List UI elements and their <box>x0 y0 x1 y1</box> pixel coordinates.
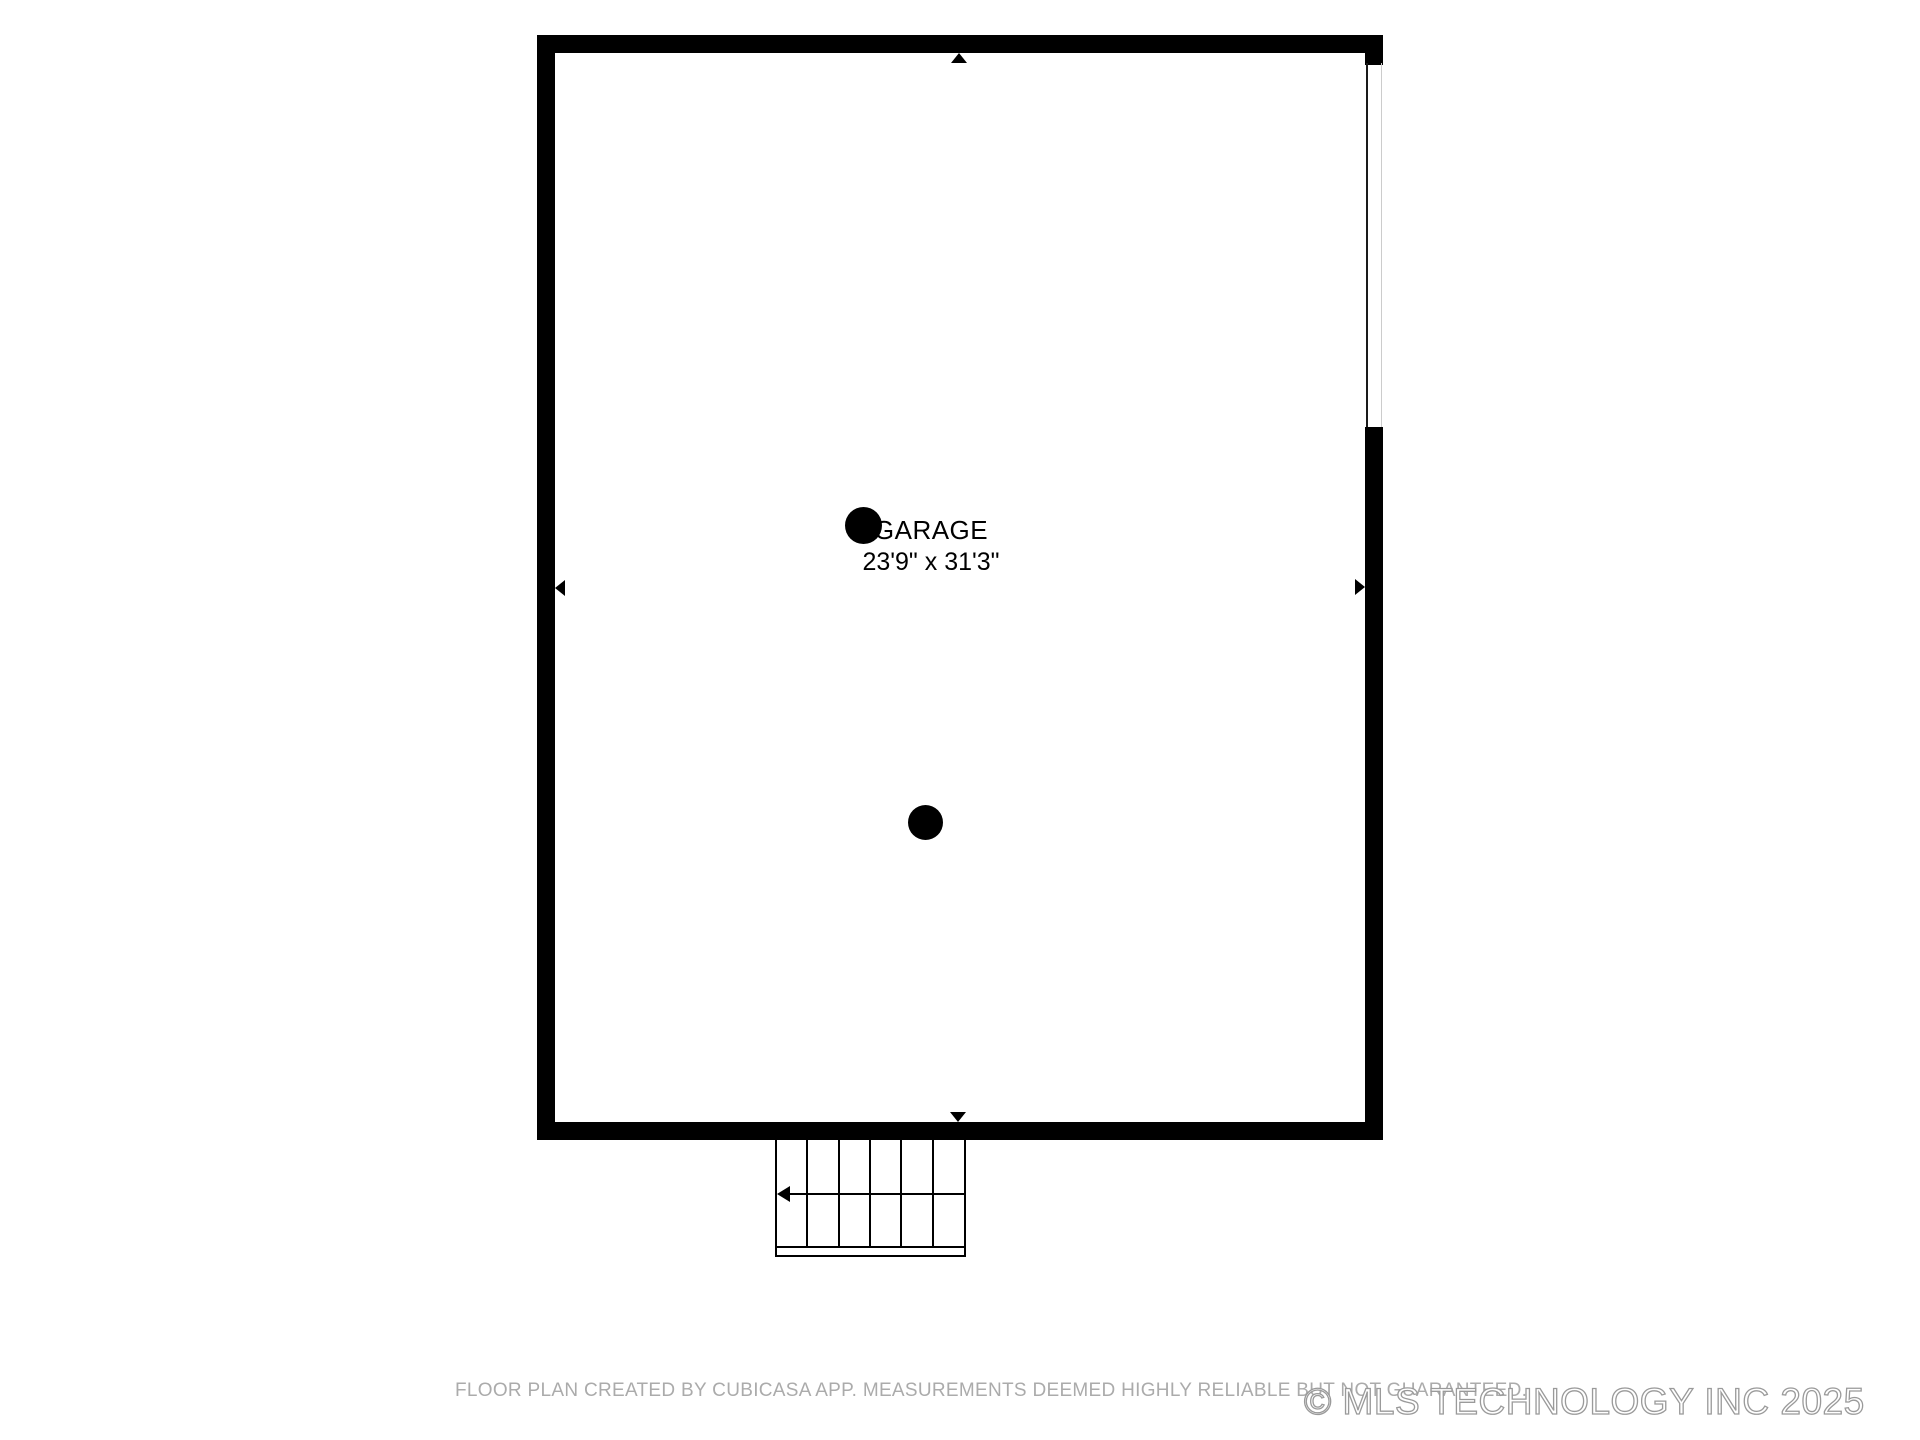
room-name-label: GARAGE <box>781 514 1081 546</box>
stair-bottom-edge-line <box>777 1246 964 1248</box>
room-label-group: GARAGE 23'9" x 31'3" <box>781 514 1081 579</box>
garage-door-opening-line <box>1366 63 1368 427</box>
dimension-arrow-up-icon <box>951 53 967 63</box>
dimension-arrow-down-icon <box>950 1112 966 1122</box>
camera-point-icon <box>908 805 943 840</box>
floor-plan-page: GARAGE 23'9" x 31'3" FLOOR PLAN CREATED … <box>0 0 1920 1440</box>
stair-direction-arrow-icon <box>777 1186 790 1202</box>
copyright-watermark: © MLS TECHNOLOGY INC 2025 <box>1304 1381 1865 1423</box>
wall-right <box>1365 427 1383 1140</box>
wall-left <box>537 35 555 1140</box>
staircase <box>775 1138 966 1257</box>
dimension-arrow-left-icon <box>555 580 565 596</box>
dimension-arrow-right-icon <box>1355 579 1365 595</box>
garage-door-opening-outer-line <box>1381 63 1382 427</box>
wall-top <box>537 35 1383 53</box>
stair-walk-line <box>788 1193 964 1195</box>
room-dimensions-label: 23'9" x 31'3" <box>781 546 1081 579</box>
